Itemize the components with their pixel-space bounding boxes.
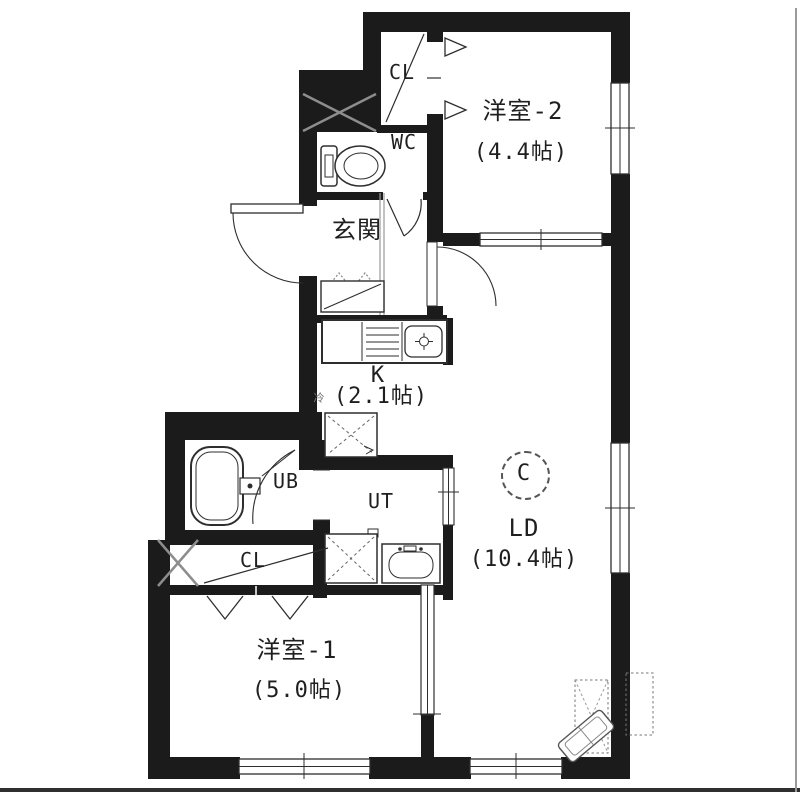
wall-room2-bottom-right-stub — [602, 233, 611, 246]
wall-bottom-right — [561, 757, 630, 779]
c-mark-label: C — [517, 463, 531, 485]
image-right-border — [795, 8, 797, 792]
room1-name-label: 洋室-1 — [257, 638, 338, 662]
kitchen-counter-icon — [322, 320, 447, 363]
entrance-label: 玄関 — [332, 218, 382, 242]
closet-bottom-label: CL — [240, 550, 266, 570]
unit-bath-label: UB — [273, 471, 299, 491]
image-bottom-border — [0, 788, 800, 792]
wall-partition-room1-ld — [421, 715, 434, 757]
wall-above-counter — [299, 315, 447, 323]
floor-plan: 洋室-2 (4.4帖) CL WC 玄関 K (2.1帖) 冷 UB CL UT… — [0, 0, 800, 800]
ld-name-label: LD — [509, 516, 540, 540]
window-ld-south — [470, 753, 562, 779]
wc-label: WC — [391, 132, 417, 152]
wall-right-lower — [611, 573, 630, 757]
wall-bottom-middle — [369, 757, 471, 779]
entrance-door — [231, 204, 317, 283]
closet-top-label: CL — [389, 62, 415, 82]
wall-kitchen-right — [443, 318, 453, 365]
shoe-cabinet-icon — [321, 273, 384, 312]
ld-size-label: (10.4帖) — [470, 549, 578, 571]
entrance-step-line — [380, 193, 384, 315]
kitchen-size-label: (2.1帖) — [334, 386, 428, 408]
ld-door-swing — [427, 242, 496, 306]
wall-ub-right-upper — [313, 440, 330, 470]
wall-right-upper — [611, 12, 630, 83]
room2-name-label: 洋室-2 — [483, 99, 564, 123]
room1-size-label: (5.0帖) — [252, 680, 346, 702]
room2-size-label: (4.4帖) — [474, 142, 568, 164]
wall-below-wc-left — [299, 192, 383, 200]
wall-hall-ld-upper — [427, 197, 443, 242]
utility-label: UT — [368, 491, 394, 511]
room2-sliding-door — [480, 229, 602, 250]
bathtub-icon — [191, 447, 260, 525]
toilet-icon — [321, 146, 385, 186]
wall-topleft-vertical — [363, 12, 381, 72]
wall-room2-bottom-left-stub — [443, 233, 480, 246]
fridge-space-icon — [325, 413, 377, 457]
window-room2-east — [605, 83, 635, 174]
washer-space-icon — [325, 529, 378, 583]
water-heater-icon — [557, 673, 653, 763]
wall-right-middle — [611, 174, 630, 443]
wall-closet-right — [427, 32, 443, 197]
wc-door-swing — [387, 199, 421, 236]
fridge-label: 冷 — [314, 393, 325, 404]
wall-bottom-left — [148, 757, 240, 779]
window-ld-east — [605, 443, 635, 573]
ut-door — [438, 468, 459, 525]
room1-sliding-door — [413, 585, 441, 715]
window-room1-south — [239, 753, 370, 779]
wall-room1-top-band — [148, 585, 453, 595]
wall-entrance-left-upper — [299, 70, 317, 207]
wall-top — [365, 12, 630, 32]
wall-ut-right-upper — [443, 462, 453, 468]
wall-below-ub — [165, 530, 330, 545]
washbasin-icon — [382, 544, 440, 583]
wall-left-lower — [148, 540, 170, 757]
